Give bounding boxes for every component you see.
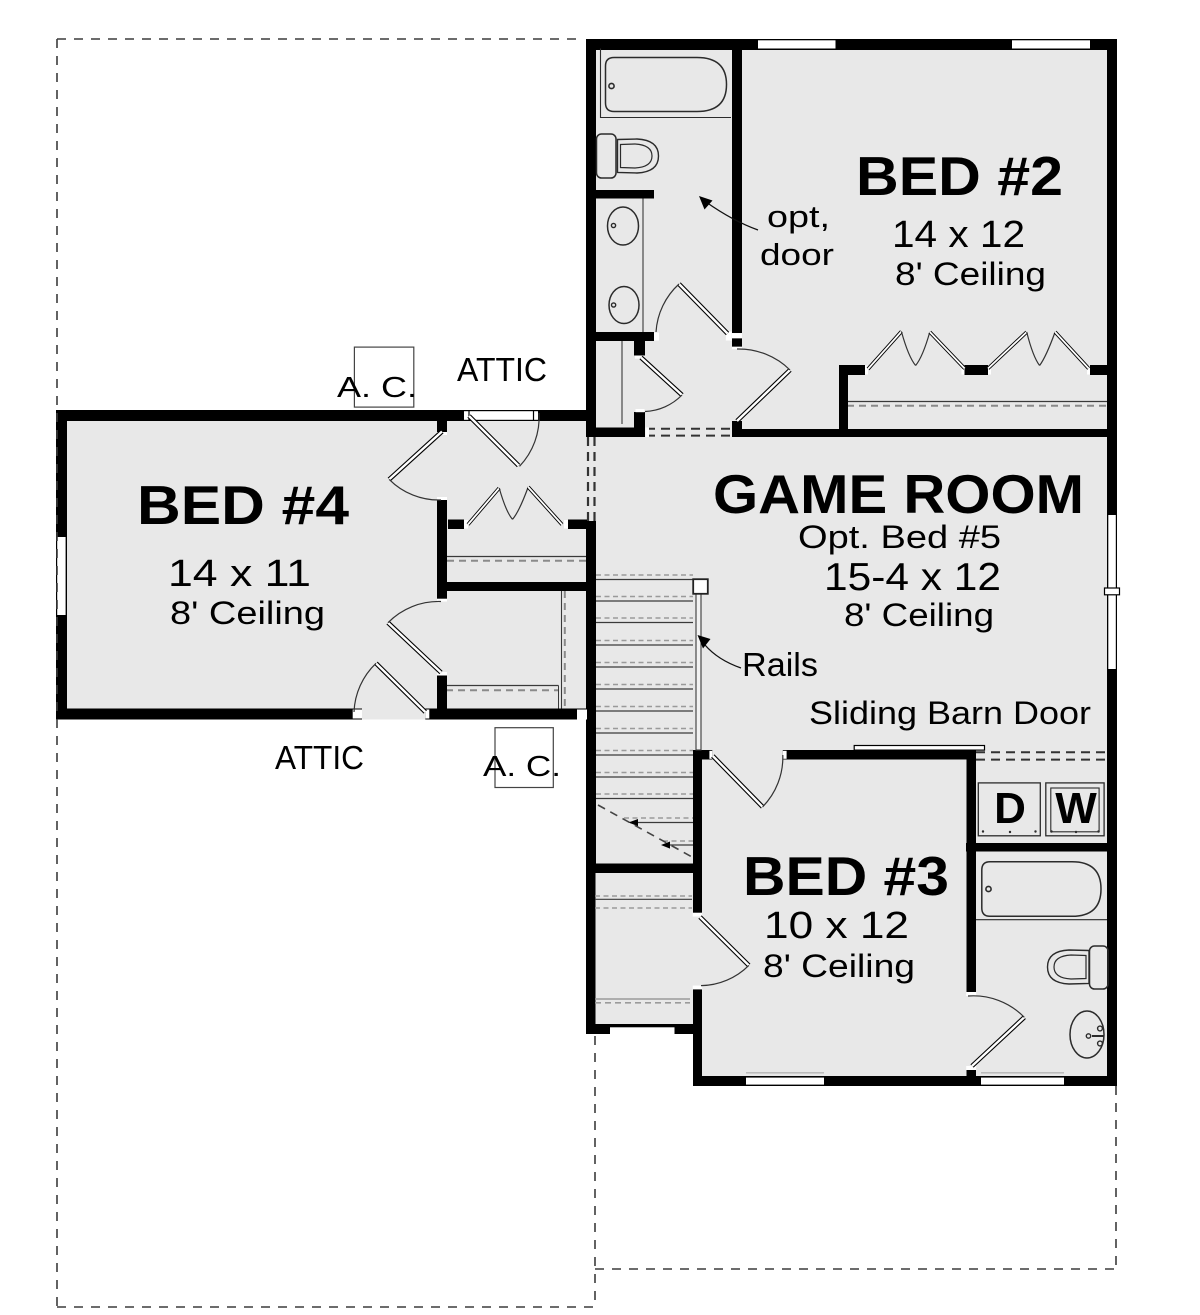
svg-text:A. C.: A. C. [337,372,417,404]
svg-text:14 x 12: 14 x 12 [892,214,1025,256]
svg-text:door: door [760,237,834,272]
svg-text:D: D [994,784,1026,833]
svg-text:8' Ceiling: 8' Ceiling [895,256,1046,292]
svg-text:opt,: opt, [767,199,830,234]
svg-text:BED #2: BED #2 [856,145,1063,207]
svg-text:ATTIC: ATTIC [275,739,364,776]
svg-text:ATTIC: ATTIC [457,351,547,388]
svg-text:A. C.: A. C. [483,751,561,783]
svg-text:8' Ceiling: 8' Ceiling [763,948,915,984]
svg-text:8' Ceiling: 8' Ceiling [170,595,325,631]
svg-text:Opt. Bed #5: Opt. Bed #5 [798,519,1001,555]
svg-text:Rails: Rails [742,646,818,683]
svg-text:GAME ROOM: GAME ROOM [713,463,1084,525]
svg-text:8' Ceiling: 8' Ceiling [844,597,994,633]
svg-text:15-4 x 12: 15-4 x 12 [824,556,1001,599]
svg-text:14 x 11: 14 x 11 [168,553,311,595]
svg-text:Sliding Barn Door: Sliding Barn Door [809,695,1091,731]
svg-text:W: W [1055,784,1097,833]
svg-text:10 x 12: 10 x 12 [764,905,909,947]
svg-text:BED #4: BED #4 [137,474,349,536]
svg-text:BED #3: BED #3 [743,845,949,907]
